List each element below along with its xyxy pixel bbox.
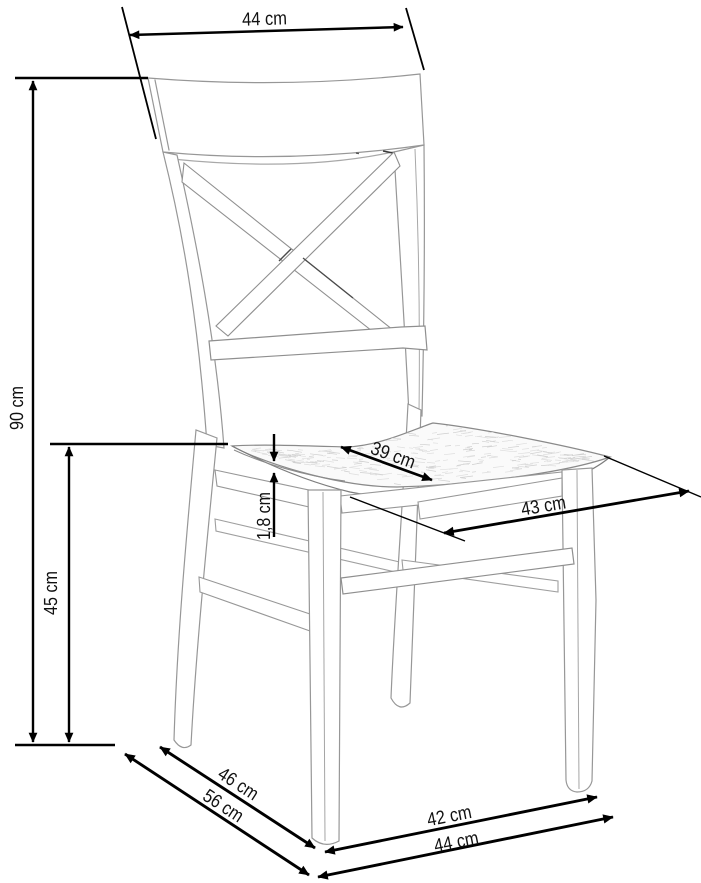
svg-text:90 cm: 90 cm [7, 386, 28, 430]
svg-text:44 cm: 44 cm [432, 828, 480, 857]
svg-text:45 cm: 45 cm [41, 571, 62, 615]
svg-text:42 cm: 42 cm [425, 802, 473, 831]
svg-text:44 cm: 44 cm [242, 8, 288, 30]
svg-text:1,8 cm: 1,8 cm [254, 492, 275, 540]
